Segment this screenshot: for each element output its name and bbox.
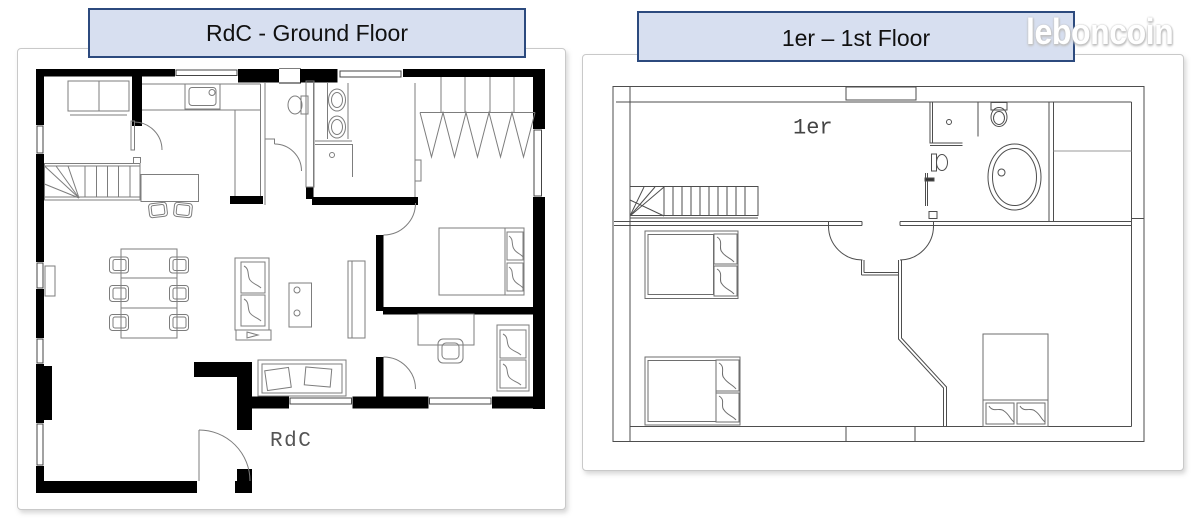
svg-text:RdC: RdC	[270, 430, 312, 453]
svg-text:1er: 1er	[793, 116, 833, 141]
